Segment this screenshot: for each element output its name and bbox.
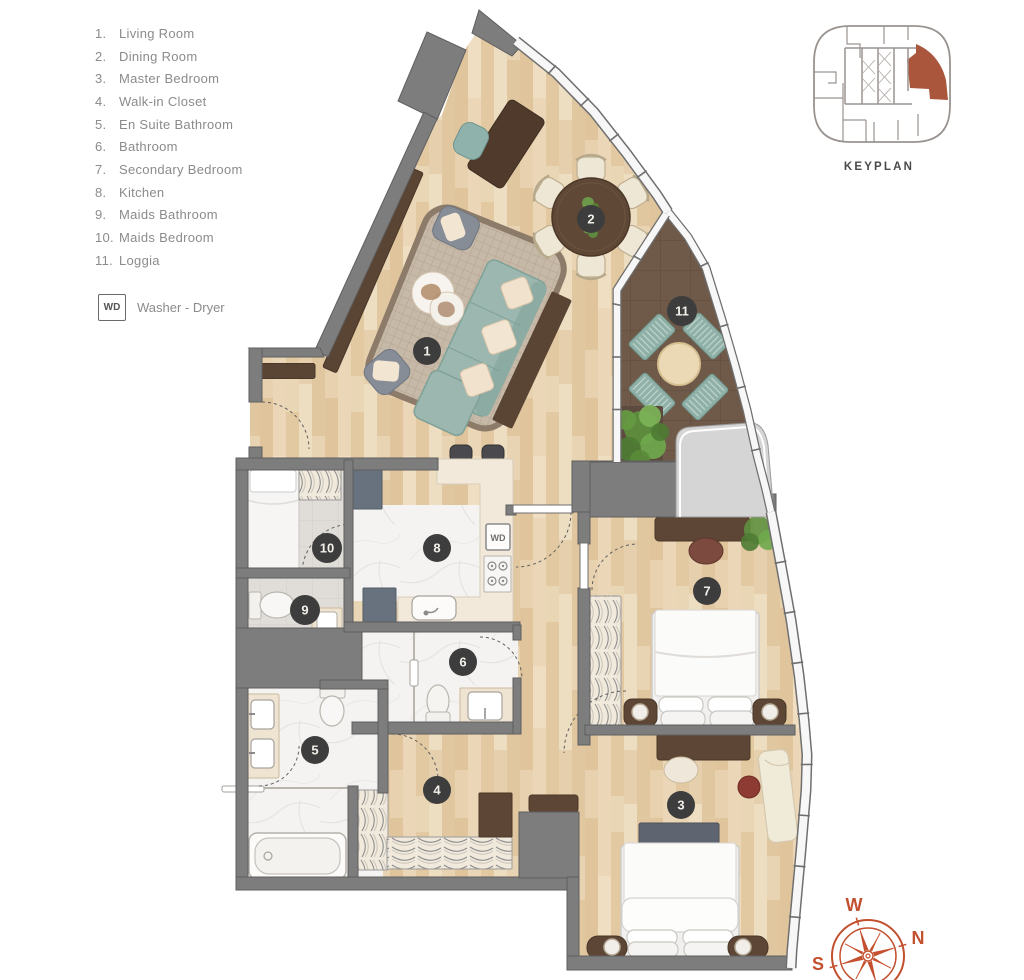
svg-text:11: 11 [675,304,689,319]
svg-text:2: 2 [587,212,594,227]
svg-text:5: 5 [311,743,318,758]
svg-text:S: S [812,954,824,974]
svg-text:W: W [846,895,863,915]
svg-text:4: 4 [433,783,441,798]
svg-text:9: 9 [301,603,308,618]
svg-text:KEYPLAN: KEYPLAN [844,161,914,173]
svg-text:8: 8 [433,541,440,556]
svg-text:N: N [912,928,925,948]
svg-text:3: 3 [677,798,684,813]
svg-text:WD: WD [491,533,506,543]
svg-text:7: 7 [703,584,710,599]
svg-text:6: 6 [459,655,466,670]
svg-text:1: 1 [423,344,430,359]
svg-text:10: 10 [320,541,334,556]
